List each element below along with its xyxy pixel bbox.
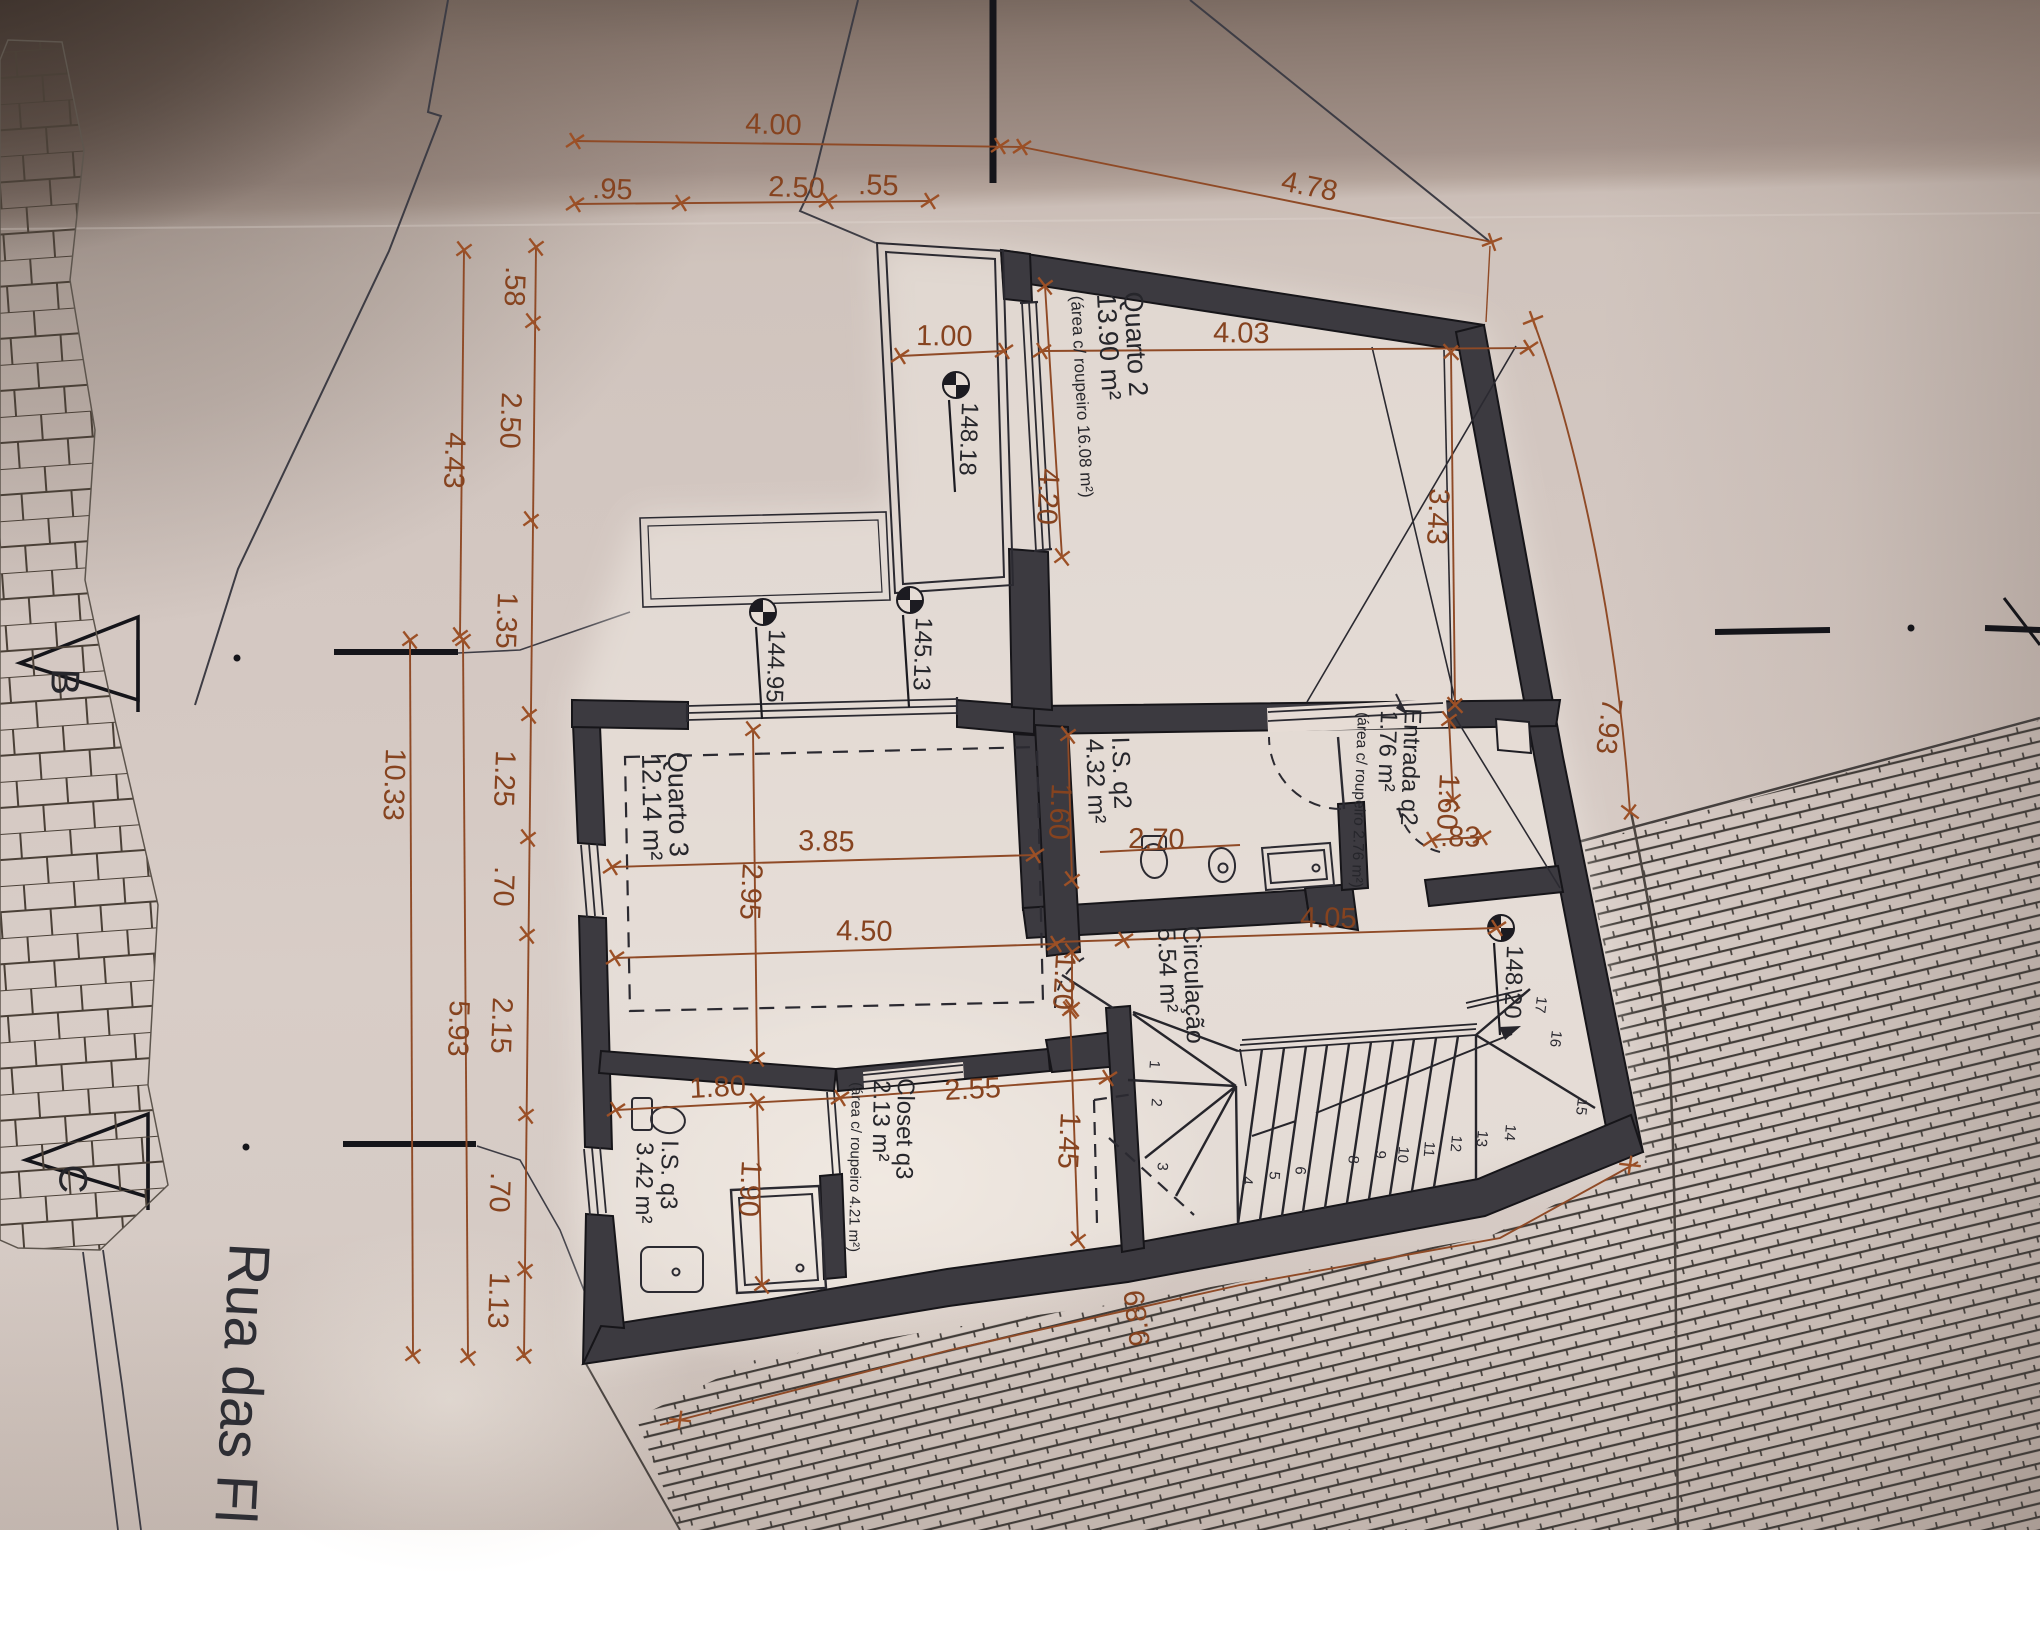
- svg-text:13.90 m²: 13.90 m²: [1091, 293, 1127, 401]
- svg-text:1.20: 1.20: [1046, 953, 1081, 1011]
- svg-text:4.03: 4.03: [1213, 317, 1270, 350]
- svg-text:1.80: 1.80: [689, 1070, 747, 1105]
- svg-text:17: 17: [1531, 996, 1550, 1015]
- svg-text:1.00: 1.00: [916, 320, 973, 353]
- svg-text:.83: .83: [1440, 821, 1481, 854]
- svg-text:8: 8: [1344, 1155, 1362, 1165]
- svg-text:6: 6: [1291, 1166, 1309, 1176]
- svg-text:5.54 m²: 5.54 m²: [1152, 927, 1183, 1013]
- svg-text:1.13: 1.13: [481, 1272, 515, 1330]
- svg-text:13: 13: [1473, 1130, 1491, 1148]
- svg-text:3: 3: [1153, 1162, 1171, 1172]
- svg-text:I.S. q3: I.S. q3: [655, 1140, 683, 1210]
- svg-text:2.70: 2.70: [1128, 823, 1185, 856]
- svg-text:12: 12: [1447, 1135, 1465, 1153]
- svg-text:4.00: 4.00: [745, 108, 803, 142]
- svg-text:16: 16: [1546, 1030, 1565, 1049]
- svg-text:1.25: 1.25: [487, 750, 521, 808]
- svg-text:.70: .70: [483, 1172, 516, 1213]
- svg-text:145.13: 145.13: [907, 617, 937, 691]
- svg-text:2.55: 2.55: [944, 1072, 1002, 1107]
- svg-text:144.95: 144.95: [760, 629, 790, 703]
- svg-text:4.32 m²: 4.32 m²: [1080, 738, 1111, 824]
- svg-text:12.14 m²: 12.14 m²: [636, 754, 668, 861]
- svg-text:2.50: 2.50: [493, 392, 527, 450]
- svg-text:1.60: 1.60: [1042, 783, 1077, 841]
- svg-text:3.42 m²: 3.42 m²: [630, 1142, 658, 1224]
- svg-text:2.15: 2.15: [484, 997, 518, 1055]
- svg-text:7.93: 7.93: [1589, 696, 1628, 756]
- svg-text:2: 2: [1147, 1098, 1165, 1108]
- svg-text:4.43: 4.43: [437, 432, 471, 490]
- svg-text:148.18: 148.18: [953, 402, 983, 476]
- svg-text:B: B: [42, 668, 87, 696]
- svg-text:C: C: [50, 1164, 95, 1194]
- svg-text:5.93: 5.93: [441, 1000, 475, 1058]
- svg-text:9.89: 9.89: [1118, 1288, 1157, 1348]
- svg-text:4.05: 4.05: [1300, 902, 1357, 935]
- svg-text:10.33: 10.33: [376, 748, 411, 822]
- svg-text:4.78: 4.78: [1279, 166, 1341, 209]
- svg-text:.55: .55: [858, 169, 899, 202]
- svg-text:Rua das Fl: Rua das Fl: [202, 1241, 282, 1524]
- svg-text:10: 10: [1394, 1146, 1412, 1164]
- svg-text:2.95: 2.95: [733, 863, 768, 921]
- svg-text:(área c/ roupeiro 4.21 m²): (área c/ roupeiro 4.21 m²): [845, 1082, 865, 1252]
- svg-text:148.20: 148.20: [1498, 945, 1528, 1019]
- svg-text:.58: .58: [498, 266, 531, 307]
- svg-text:2.50: 2.50: [768, 171, 826, 205]
- svg-text:11: 11: [1420, 1141, 1438, 1158]
- svg-text:3.43: 3.43: [1420, 488, 1455, 546]
- svg-text:2.13 m²: 2.13 m²: [867, 1080, 895, 1162]
- svg-text:4.50: 4.50: [836, 915, 893, 948]
- svg-text:1: 1: [1145, 1060, 1163, 1070]
- svg-text:4: 4: [1238, 1176, 1256, 1186]
- svg-text:5: 5: [1265, 1171, 1283, 1181]
- svg-text:1.76 m²: 1.76 m²: [1372, 710, 1402, 792]
- svg-text:1.35: 1.35: [489, 592, 523, 650]
- svg-text:4.20: 4.20: [1030, 468, 1065, 526]
- svg-text:9: 9: [1371, 1150, 1389, 1160]
- svg-text:14: 14: [1501, 1124, 1519, 1142]
- svg-text:1.90: 1.90: [732, 1160, 767, 1218]
- svg-text:1.45: 1.45: [1051, 1112, 1086, 1170]
- svg-text:.70: .70: [487, 866, 520, 907]
- svg-text:15: 15: [1572, 1098, 1591, 1117]
- svg-text:.95: .95: [592, 173, 633, 206]
- svg-text:3.85: 3.85: [798, 825, 855, 858]
